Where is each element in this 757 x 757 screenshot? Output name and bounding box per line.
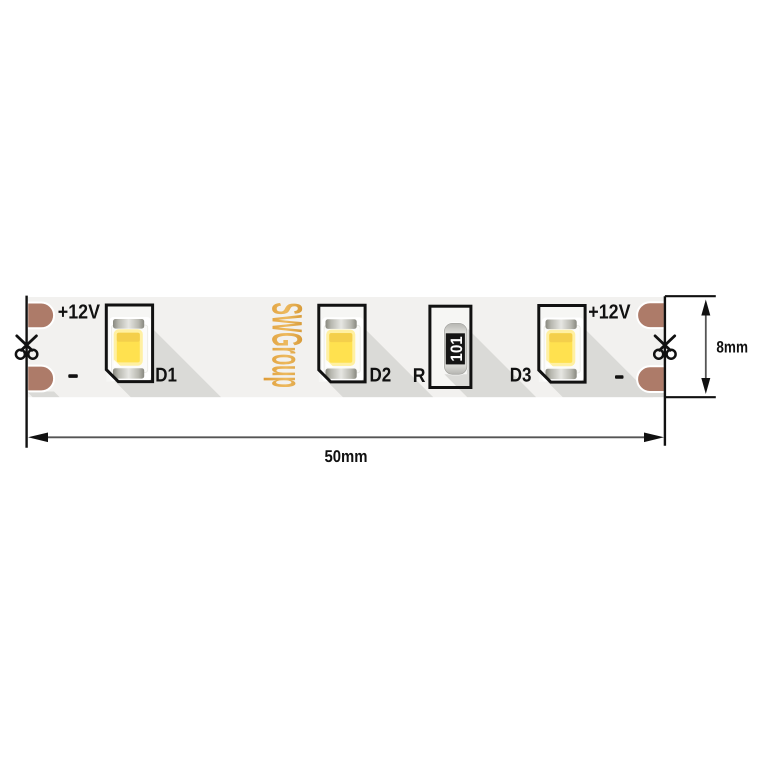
- svg-text:D1: D1: [155, 365, 177, 387]
- svg-text:8mm: 8mm: [716, 339, 748, 357]
- svg-text:+12V: +12V: [58, 301, 101, 323]
- svg-text:D3: D3: [510, 365, 532, 387]
- svg-text:+12V: +12V: [588, 301, 631, 323]
- svg-text:R: R: [413, 365, 426, 387]
- svg-text:50mm: 50mm: [325, 447, 368, 466]
- svg-text:101: 101: [448, 336, 466, 361]
- svg-text:SWGroup: SWGroup: [263, 303, 310, 388]
- svg-text:D2: D2: [370, 365, 392, 387]
